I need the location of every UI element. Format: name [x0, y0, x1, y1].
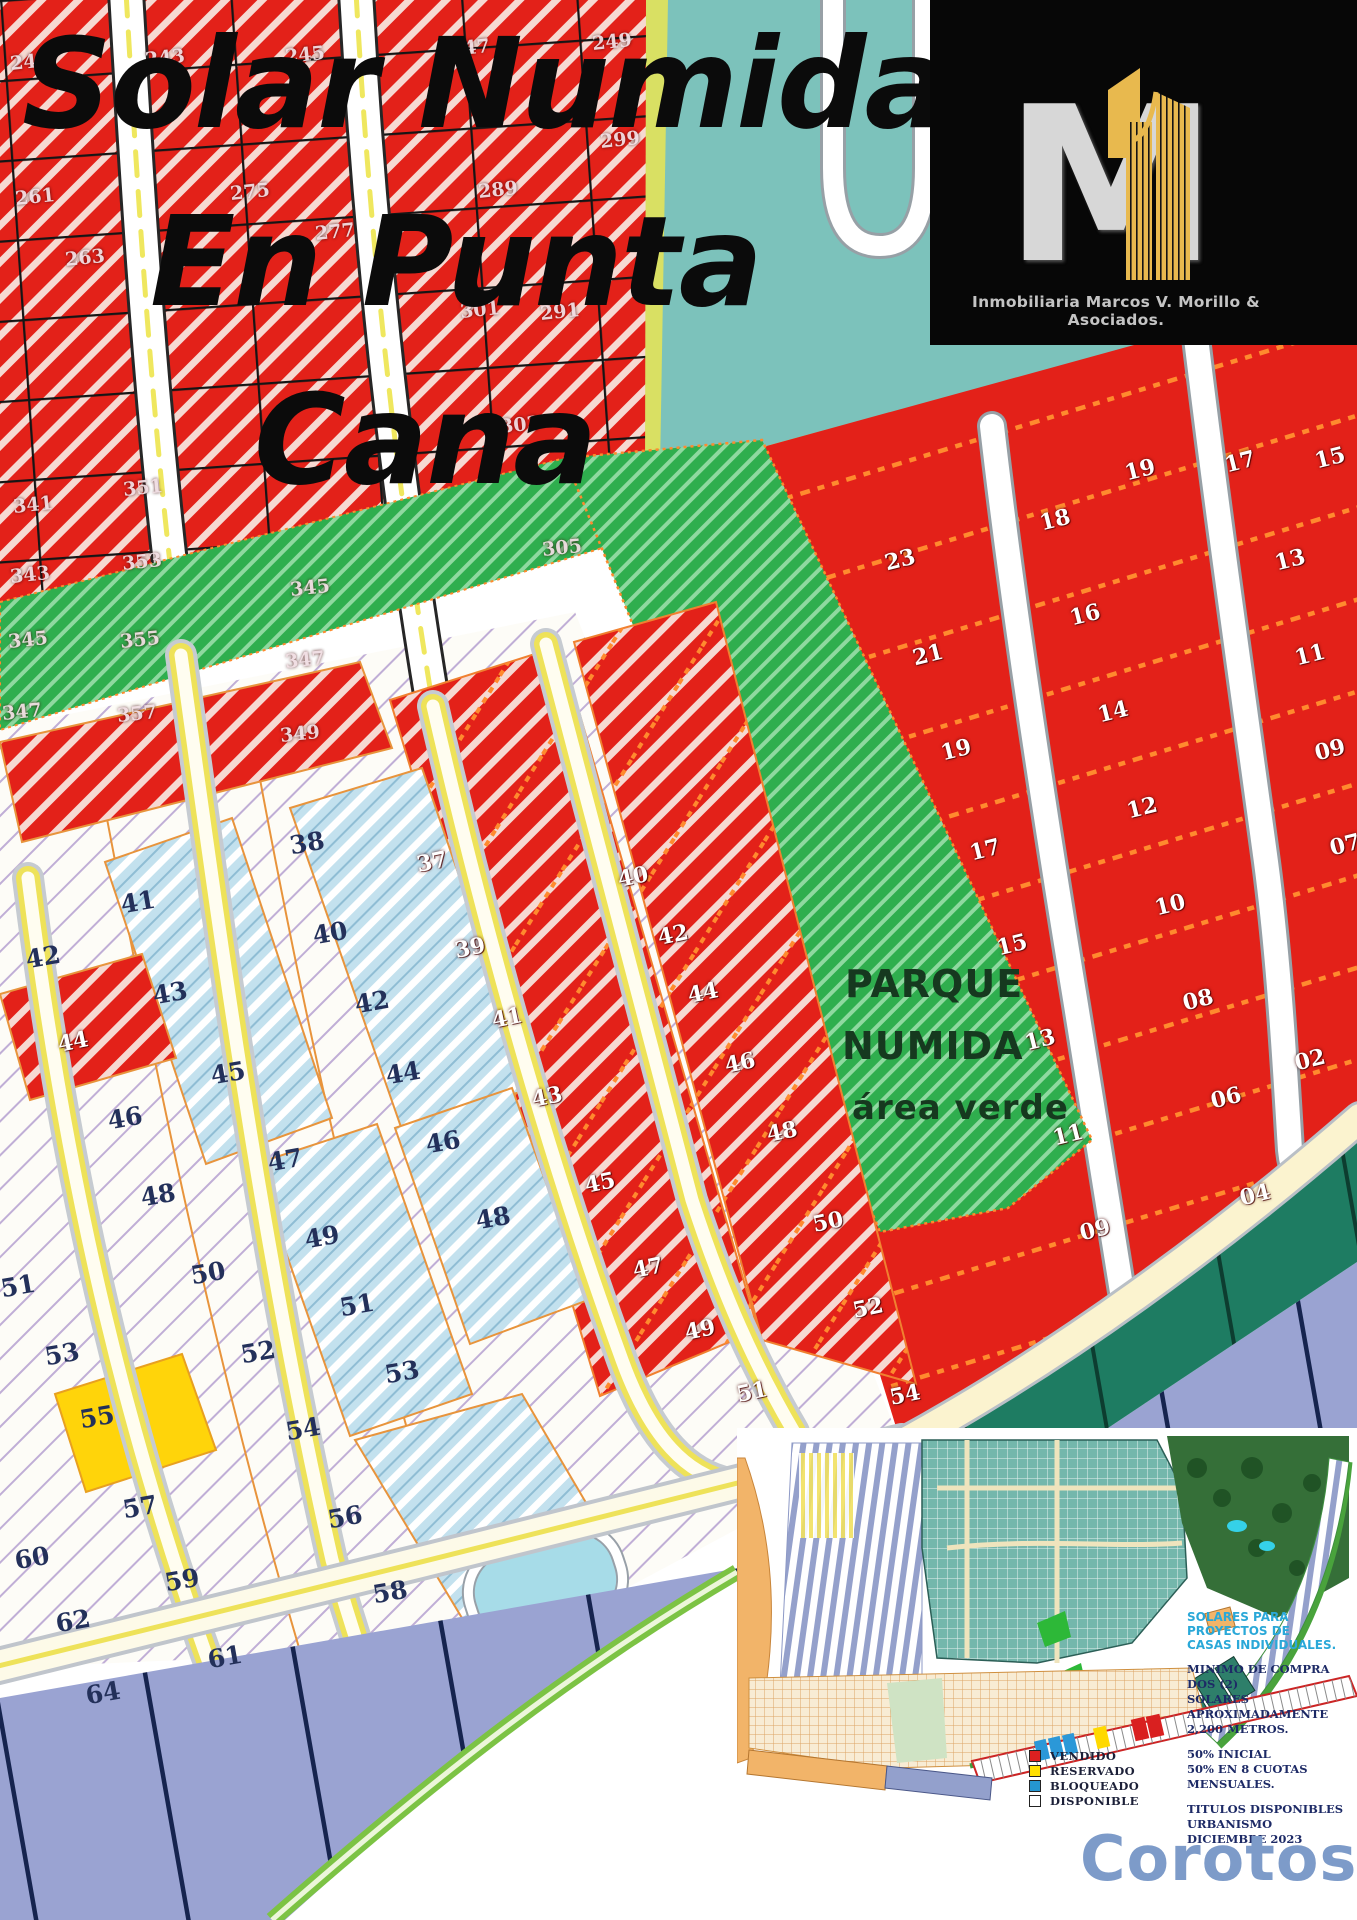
vendido-label: VENDIDO: [1050, 1749, 1116, 1763]
lot-number: 45: [582, 1167, 617, 1199]
listing-flyer: { "title": {"line1": "Solar Numida", "li…: [0, 0, 1357, 1920]
lot-number: 55: [77, 1400, 116, 1435]
page-title-line2: En Punta: [150, 200, 761, 325]
lot-number: 15: [1312, 442, 1348, 475]
legend-item-reservado: RESERVADO: [1029, 1763, 1139, 1778]
lot-number: 347: [1, 699, 43, 725]
lot-number: 38: [287, 826, 326, 861]
inset-body-line: SOLARES APROXIMADAMENTE: [1187, 1692, 1355, 1722]
lot-number: 44: [383, 1056, 422, 1091]
lot-number: 60: [12, 1541, 51, 1576]
disponible-label: DISPONIBLE: [1050, 1794, 1139, 1808]
lot-number: 06: [1208, 1082, 1244, 1115]
reservado-swatch: [1029, 1765, 1041, 1777]
lot-number: 23: [882, 544, 918, 577]
lot-number: 02: [1292, 1044, 1328, 1077]
lot-number: 48: [764, 1116, 799, 1148]
bloqueado-label: BLOQUEADO: [1050, 1779, 1139, 1793]
lot-number: 52: [238, 1335, 277, 1370]
lot-number: 64: [83, 1676, 122, 1711]
lot-number: 50: [810, 1206, 845, 1238]
park-label-line1: PARQUE: [845, 962, 1023, 1006]
lot-number: 42: [655, 919, 690, 951]
inset-sales-text: SOLARES PARA PROYECTOS DE CASAS INDIVIDU…: [1187, 1610, 1355, 1847]
lot-number: 45: [208, 1056, 247, 1091]
lot-number: 10: [1152, 889, 1188, 922]
lot-number: 49: [682, 1314, 717, 1346]
legend-item-disponible: DISPONIBLE: [1029, 1793, 1139, 1808]
lot-number: 44: [55, 1026, 90, 1058]
legend-item-bloqueado: BLOQUEADO: [1029, 1778, 1139, 1793]
lot-number: 261: [14, 184, 56, 210]
lot-number: 48: [138, 1178, 177, 1213]
lot-number: 40: [310, 916, 349, 951]
lot-number: 263: [64, 245, 106, 271]
lot-number: 52: [850, 1292, 885, 1324]
lot-number: 11: [1292, 639, 1328, 672]
page-title-line3: Cana: [254, 378, 595, 503]
inset-heading-line1: SOLARES PARA PROYECTOS DE: [1187, 1610, 1355, 1638]
reservado-label: RESERVADO: [1050, 1764, 1135, 1778]
lot-number: 62: [53, 1604, 92, 1639]
lot-number: 12: [1124, 792, 1160, 825]
lot-number: 54: [887, 1379, 922, 1411]
park-label-line2: NUMIDA: [842, 1024, 1024, 1068]
inset-body-line: 2,200 METROS.: [1187, 1722, 1355, 1737]
lot-number: 19: [1122, 454, 1158, 487]
lot-number: 46: [722, 1047, 757, 1079]
lot-number: 47: [630, 1252, 665, 1284]
inset-masterplan: VENDIDO RESERVADO BLOQUEADO DISPONIBLE S…: [737, 1428, 1357, 1832]
lot-number: 42: [352, 985, 391, 1020]
inset-body-line: TITULOS DISPONIBLES: [1187, 1802, 1355, 1817]
inset-body-line: 50% EN 8 CUOTAS MENSUALES.: [1187, 1762, 1355, 1792]
lot-number: 53: [42, 1337, 81, 1372]
lot-number: 357: [116, 701, 158, 727]
lot-number: 47: [265, 1143, 304, 1178]
lot-number: 37: [414, 846, 449, 878]
inset-body-line: MINIMO DE COMPRA DOS (2): [1187, 1662, 1355, 1692]
lot-number: 19: [938, 734, 974, 767]
lot-number: 41: [118, 885, 157, 920]
inset-body-line: 50% INICIAL: [1187, 1747, 1355, 1762]
lot-number: 07: [1327, 829, 1357, 862]
lot-number: 53: [382, 1355, 421, 1390]
lot-number: 15: [994, 929, 1030, 962]
lot-number: 48: [473, 1201, 512, 1236]
lot-number: 41: [489, 1002, 524, 1034]
lot-number: 13: [1272, 544, 1308, 577]
brand-caption: Inmobiliaria Marcos V. Morillo & Asociad…: [946, 293, 1286, 329]
lot-number: 58: [370, 1575, 409, 1610]
lot-number: 355: [119, 627, 161, 653]
vendido-swatch: [1029, 1750, 1041, 1762]
lot-number: 351: [122, 475, 164, 501]
lot-number: 09: [1077, 1214, 1113, 1247]
lot-number: 305: [541, 535, 583, 561]
lot-number: 49: [302, 1220, 341, 1255]
park-label-line3: área verde: [852, 1088, 1069, 1128]
lot-number: 341: [12, 492, 54, 518]
lot-number: 51: [734, 1376, 769, 1408]
lot-number: 46: [105, 1101, 144, 1136]
page-title-line1: Solar Numida: [22, 22, 947, 147]
inset-legend: VENDIDO RESERVADO BLOQUEADO DISPONIBLE: [1029, 1748, 1139, 1808]
lot-number: 57: [120, 1490, 159, 1525]
lot-number: 16: [1067, 599, 1103, 632]
lot-number: 17: [1222, 446, 1258, 479]
lot-number: 43: [529, 1081, 564, 1113]
lot-number: 44: [685, 977, 720, 1009]
lot-number: 59: [162, 1563, 201, 1598]
lot-number: 42: [23, 940, 62, 975]
lot-number: 54: [283, 1412, 322, 1447]
lot-number: 46: [423, 1125, 462, 1160]
buildings-icon: [1106, 62, 1196, 282]
disponible-swatch: [1029, 1795, 1041, 1807]
legend-item-vendido: VENDIDO: [1029, 1748, 1139, 1763]
lot-number: 343: [9, 562, 51, 588]
lot-number: 14: [1095, 696, 1131, 729]
lot-number: 345: [289, 575, 331, 601]
lot-number: 04: [1237, 1179, 1273, 1212]
brand-logo-box: M Inmobiliaria Marcos V. Morillo & Asoci…: [930, 0, 1357, 345]
lot-number: 56: [325, 1500, 364, 1535]
lot-number: 17: [967, 834, 1003, 867]
lot-number: 345: [7, 627, 49, 653]
lot-number: 51: [0, 1269, 38, 1304]
lot-number: 21: [910, 639, 946, 672]
lot-number: 40: [615, 861, 650, 893]
lot-number: 347: [284, 647, 326, 673]
inset-pond: [1227, 1520, 1247, 1532]
lot-number: 43: [150, 976, 189, 1011]
lot-number: 09: [1312, 734, 1348, 767]
lot-number: 51: [337, 1288, 376, 1323]
bloqueado-swatch: [1029, 1780, 1041, 1792]
lot-number: 39: [452, 932, 487, 964]
lot-number: 50: [188, 1256, 227, 1291]
inset-heading-line2: CASAS INDIVIDUALES.: [1187, 1638, 1355, 1652]
lot-number: 18: [1037, 504, 1073, 537]
lot-number: 13: [1022, 1024, 1058, 1057]
corotos-watermark: Corotos: [1080, 1822, 1357, 1895]
lot-number: 353: [121, 549, 163, 575]
lot-number: 08: [1180, 984, 1216, 1017]
lot-number: 61: [205, 1640, 244, 1675]
lot-number: 349: [279, 721, 321, 747]
